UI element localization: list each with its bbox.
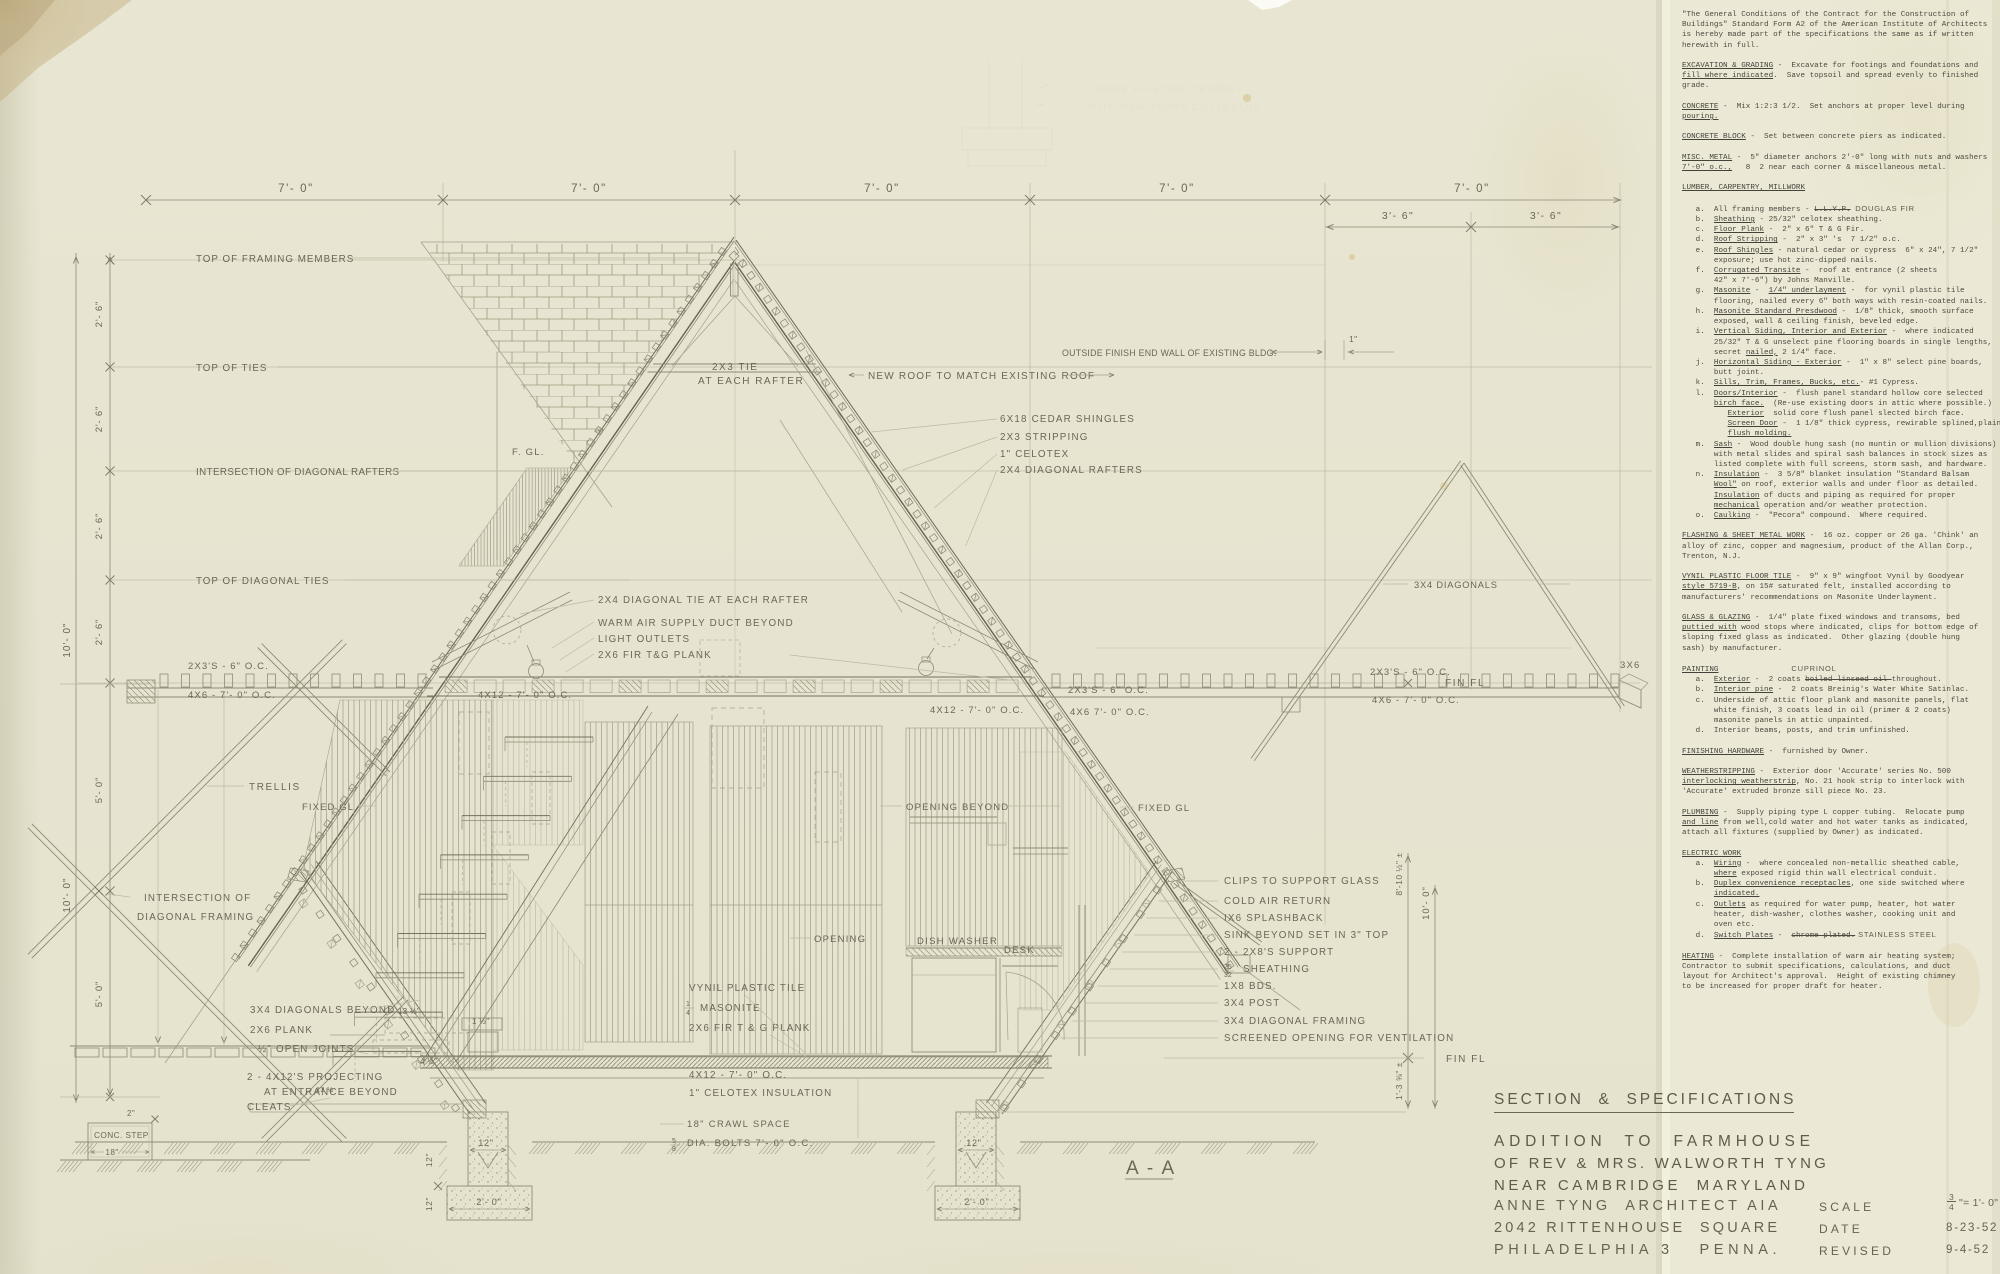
svg-text:3X4 DIAGONALS BEYOND: 3X4 DIAGONALS BEYOND bbox=[250, 1005, 395, 1016]
svg-text:4: 4 bbox=[686, 1010, 690, 1017]
svg-text:5: 5 bbox=[672, 1138, 676, 1145]
svg-text:WARM AIR SUPPLY DUCT BEYON: WARM AIR SUPPLY DUCT BEYOND bbox=[598, 618, 794, 629]
svg-text:12": 12" bbox=[478, 1138, 494, 1148]
svg-text:10'- 0": 10'- 0" bbox=[62, 622, 73, 657]
svg-text:DIA. BOLTS 7'- 0" O.C.: DIA. BOLTS 7'- 0" O.C. bbox=[687, 1138, 814, 1149]
svg-text:12": 12" bbox=[966, 1138, 982, 1148]
svg-text:DESK: DESK bbox=[1004, 945, 1035, 956]
svg-text:FIN FL: FIN FL bbox=[1446, 1054, 1486, 1065]
svg-text:8: 8 bbox=[672, 1146, 676, 1153]
svg-text:2X6 FIR T & G PLANK: 2X6 FIR T & G PLANK bbox=[689, 1023, 811, 1034]
svg-text:3X4 DIAGONALS: 3X4 DIAGONALS bbox=[1414, 580, 1498, 590]
svg-text:25: 25 bbox=[1224, 964, 1232, 971]
svg-text:COLD AIR RETURN: COLD AIR RETURN bbox=[1224, 896, 1331, 907]
svg-text:2X3'S - 6" O.C.: 2X3'S - 6" O.C. bbox=[1068, 685, 1149, 696]
svg-text:VYNIL PLASTIC TILE: VYNIL PLASTIC TILE bbox=[689, 983, 805, 994]
svg-text:OUTSIDE FINISH END WALL OF EXI: OUTSIDE FINISH END WALL OF EXISTING BLDG… bbox=[1062, 348, 1276, 358]
svg-text:SCREENED OPENING FOR VENTIL: SCREENED OPENING FOR VENTILATION bbox=[1224, 1033, 1454, 1044]
svg-text:NEW ROOF TO MATCH EXISTING: NEW ROOF TO MATCH EXISTING ROOF bbox=[868, 371, 1095, 382]
svg-text:AT ENTRANCE BEYOND: AT ENTRANCE BEYOND bbox=[264, 1087, 398, 1098]
svg-text:8'-10 ½" ±: 8'-10 ½" ± bbox=[1394, 852, 1404, 895]
svg-text:AT EACH RAFTER: AT EACH RAFTER bbox=[698, 376, 804, 387]
svg-text:2X4 DIAGONAL RAFTERS: 2X4 DIAGONAL RAFTERS bbox=[1000, 465, 1143, 476]
svg-text:3X6: 3X6 bbox=[1620, 660, 1641, 671]
svg-text:4X12 - 7'- 0" O.C.: 4X12 - 7'- 0" O.C. bbox=[930, 705, 1024, 716]
svg-text:DIAGONAL FRAMING: DIAGONAL FRAMING bbox=[137, 912, 254, 923]
svg-text:1X8 BDS.: 1X8 BDS. bbox=[1224, 981, 1277, 992]
svg-text:MASONITE: MASONITE bbox=[700, 1003, 761, 1014]
svg-text:2 - 4X12'S PROJECTING: 2 - 4X12'S PROJECTING bbox=[247, 1072, 384, 1083]
svg-text:18" CRAWL SPACE: 18" CRAWL SPACE bbox=[687, 1119, 791, 1130]
svg-text:LIGHT OUTLETS: LIGHT OUTLETS bbox=[598, 634, 690, 645]
svg-text:TOP OF DIAGONAL TIES: TOP OF DIAGONAL TIES bbox=[196, 576, 329, 587]
svg-text:4X12 - 7'- 0" O.C.: 4X12 - 7'- 0" O.C. bbox=[478, 690, 572, 701]
svg-text:A - A: A - A bbox=[1126, 1158, 1176, 1179]
svg-text:CLEATS: CLEATS bbox=[247, 1102, 292, 1113]
svg-text:10'- 0": 10'- 0" bbox=[62, 877, 73, 912]
svg-text:3X4 DIAGONAL FRAMING: 3X4 DIAGONAL FRAMING bbox=[1224, 1016, 1366, 1027]
svg-text:TOP OF TIES: TOP OF TIES bbox=[196, 363, 267, 374]
svg-text:4X6 - 7'- 0" O.C.: 4X6 - 7'- 0" O.C. bbox=[188, 690, 276, 701]
svg-text:7'- 0": 7'- 0" bbox=[278, 183, 314, 195]
svg-text:5'- 0": 5'- 0" bbox=[94, 777, 105, 803]
svg-text:2X3 STRIPPING: 2X3 STRIPPING bbox=[1000, 432, 1089, 443]
svg-text:13 ½": 13 ½" bbox=[398, 1007, 420, 1016]
svg-text:FIXED GL: FIXED GL bbox=[302, 802, 354, 813]
svg-text:OPENING BEYOND: OPENING BEYOND bbox=[906, 802, 1009, 813]
svg-text:4X6 7'- 0" O.C.: 4X6 7'- 0" O.C. bbox=[1070, 707, 1150, 718]
svg-text:2'- 6": 2'- 6" bbox=[94, 406, 105, 432]
svg-text:RAISE EXISTING CHIMNEY: RAISE EXISTING CHIMNEY bbox=[1095, 84, 1244, 94]
svg-text:FIXED GL: FIXED GL bbox=[1138, 803, 1190, 814]
svg-text:12": 12" bbox=[424, 1153, 434, 1167]
svg-text:2 - 2X8'S SUPPORT: 2 - 2X8'S SUPPORT bbox=[1224, 947, 1334, 958]
svg-text:2X3'S - 6" O.C.: 2X3'S - 6" O.C. bbox=[188, 661, 269, 672]
svg-text:INTERSECTION OF: INTERSECTION OF bbox=[144, 893, 251, 904]
svg-text:WITH NEW TERRA COTTA FLUE: WITH NEW TERRA COTTA FLUE bbox=[1088, 102, 1262, 112]
svg-text:½" OPEN JOINTS: ½" OPEN JOINTS bbox=[258, 1044, 355, 1055]
svg-text:CONC. STEP: CONC. STEP bbox=[94, 1130, 149, 1140]
svg-text:7'- 0": 7'- 0" bbox=[864, 183, 900, 195]
svg-text:2'- 0": 2'- 0" bbox=[964, 1197, 989, 1207]
svg-text:3'- 6": 3'- 6" bbox=[1530, 210, 1562, 222]
svg-text:1'-3 ⅝" ±: 1'-3 ⅝" ± bbox=[1394, 1062, 1404, 1100]
svg-text:1 ½": 1 ½" bbox=[472, 1017, 489, 1026]
svg-text:TRELLIS: TRELLIS bbox=[249, 782, 301, 793]
svg-text:F. GL.: F. GL. bbox=[512, 447, 545, 458]
svg-text:2'- 6": 2'- 6" bbox=[94, 619, 105, 645]
svg-text:3X4 POST: 3X4 POST bbox=[1224, 998, 1280, 1009]
svg-text:1": 1" bbox=[1349, 334, 1358, 344]
svg-text:2X4 DIAGONAL TIE AT EACH RAF: 2X4 DIAGONAL TIE AT EACH RAFTER bbox=[598, 595, 809, 606]
svg-text:4X12 - 7'- 0" O.C.: 4X12 - 7'- 0" O.C. bbox=[689, 1070, 787, 1081]
svg-text:INTERSECTION OF DIAGONAL RA: INTERSECTION OF DIAGONAL RAFTERS bbox=[196, 467, 400, 478]
svg-text:IX6 SPLASHBACK: IX6 SPLASHBACK bbox=[1224, 913, 1324, 924]
svg-text:7'- 0": 7'- 0" bbox=[1159, 183, 1195, 195]
svg-text:6X18 CEDAR SHINGLES: 6X18 CEDAR SHINGLES bbox=[1000, 414, 1135, 425]
svg-text:18": 18" bbox=[105, 1147, 118, 1157]
svg-text:SINK BEYOND SET IN 3" TOP: SINK BEYOND SET IN 3" TOP bbox=[1224, 930, 1389, 941]
svg-text:2'- 0": 2'- 0" bbox=[476, 1197, 501, 1207]
svg-text:3'- 6": 3'- 6" bbox=[1382, 210, 1414, 222]
svg-text:7'- 0": 7'- 0" bbox=[571, 183, 607, 195]
svg-text:2'- 6": 2'- 6" bbox=[94, 301, 105, 327]
svg-text:2'- 6": 2'- 6" bbox=[94, 513, 105, 539]
svg-text:1" CELOTEX: 1" CELOTEX bbox=[1000, 449, 1069, 460]
svg-text:2X6 FIR T&G PLANK: 2X6 FIR T&G PLANK bbox=[598, 650, 712, 661]
svg-text:12": 12" bbox=[424, 1197, 434, 1211]
svg-text:CLIPS TO SUPPORT GLASS: CLIPS TO SUPPORT GLASS bbox=[1224, 876, 1380, 887]
svg-text:TOP OF FRAMING MEMBERS: TOP OF FRAMING MEMBERS bbox=[196, 254, 354, 265]
svg-text:1: 1 bbox=[686, 1001, 690, 1008]
svg-text:1" CELOTEX INSULATION: 1" CELOTEX INSULATION bbox=[689, 1088, 832, 1099]
svg-text:5'- 0": 5'- 0" bbox=[94, 981, 105, 1007]
svg-text:4 ½": 4 ½" bbox=[420, 1057, 437, 1066]
svg-text:2X3'S - 6" O.C.: 2X3'S - 6" O.C. bbox=[1370, 667, 1451, 678]
svg-text:7'- 0": 7'- 0" bbox=[1454, 183, 1490, 195]
svg-text:2X3 TIE: 2X3 TIE bbox=[712, 362, 758, 373]
svg-text:DISH WASHER: DISH WASHER bbox=[917, 936, 998, 947]
svg-text:32: 32 bbox=[1224, 972, 1232, 979]
svg-text:2": 2" bbox=[127, 1109, 135, 1118]
svg-text:10'- 0": 10'- 0" bbox=[1421, 886, 1432, 920]
svg-text:2X6 PLANK: 2X6 PLANK bbox=[250, 1025, 313, 1036]
svg-text:SHEATHING: SHEATHING bbox=[1243, 964, 1310, 975]
svg-text:4X6 - 7'- 0" O.C.: 4X6 - 7'- 0" O.C. bbox=[1372, 695, 1460, 706]
svg-text:OPENING: OPENING bbox=[814, 934, 866, 945]
